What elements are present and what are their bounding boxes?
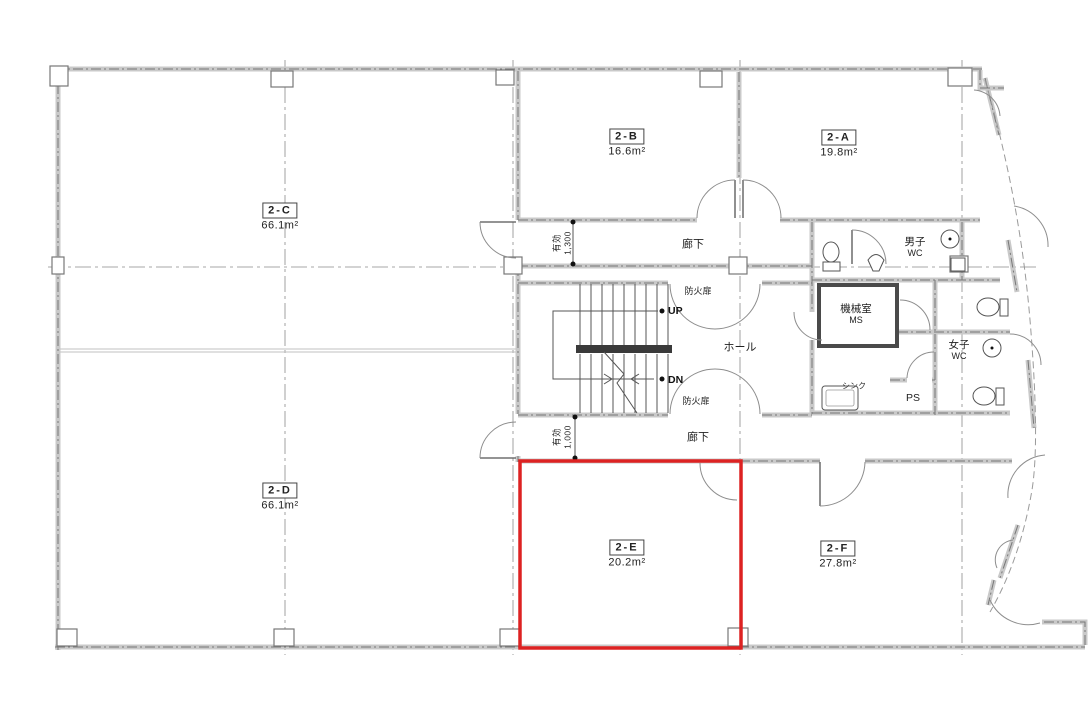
fire-door-lower-label: 防火扉 — [682, 396, 709, 406]
room-tag-2B: 2-B — [609, 129, 645, 145]
corridor-upper-label: 廊下 — [682, 239, 704, 252]
room-tag-2A: 2-A — [821, 130, 857, 146]
grid-lines — [48, 60, 1040, 655]
room-area-2D: 66.1m² — [261, 500, 298, 512]
urinal-icon — [868, 255, 884, 272]
room-area-2E: 20.2m² — [608, 557, 645, 569]
room-area-2F: 27.8m² — [819, 558, 856, 570]
room-label-2E[interactable]: 2-E 20.2m² — [608, 538, 645, 569]
room-label-2C: 2-C 66.1m² — [261, 201, 298, 232]
tenant-partition-line — [57, 349, 516, 352]
hall-label: ホール — [724, 342, 757, 355]
room-label-2D: 2-D 66.1m² — [261, 481, 298, 512]
fire-door-upper-label: 防火扉 — [684, 286, 711, 296]
toilet-icon — [977, 298, 999, 316]
walls-centerline — [55, 66, 1085, 650]
stair-landing — [576, 345, 672, 353]
pipe-space-label: PS — [906, 392, 920, 404]
corridor-lower-label: 廊下 — [687, 432, 709, 445]
stairs-up-label: UP — [668, 305, 683, 317]
room-tag-2F: 2-F — [821, 541, 856, 557]
toilet-icon — [973, 387, 995, 405]
mens-wc-label: 男子 WC — [905, 236, 926, 258]
room-label-2B: 2-B 16.6m² — [608, 127, 645, 158]
walls — [55, 66, 1085, 650]
floor-plan-canvas: 2-C 66.1m² 2-B 16.6m² 2-A 19.8m² 2-D 66.… — [0, 0, 1092, 708]
womens-wc-label: 女子 WC — [949, 339, 970, 361]
toilet-icon — [823, 242, 839, 262]
sink-label: シンク — [842, 381, 866, 390]
room-area-2C: 66.1m² — [261, 220, 298, 232]
room-area-2B: 16.6m² — [608, 146, 645, 158]
room-label-2A: 2-A 19.8m² — [820, 128, 857, 159]
room-tag-2E: 2-E — [609, 540, 644, 556]
stairs-down-label: DN — [668, 374, 683, 386]
machine-room-label: 機械室 MS — [840, 303, 872, 325]
clear-width-lower-dimension: 有効 1,000 — [551, 425, 572, 449]
room-area-2A: 19.8m² — [820, 147, 857, 159]
floor-plan-linework — [0, 0, 1092, 708]
room-tag-2C: 2-C — [262, 203, 298, 219]
staircase — [553, 284, 672, 413]
room-label-2F: 2-F 27.8m² — [819, 539, 856, 570]
room-tag-2D: 2-D — [262, 483, 298, 499]
clear-width-upper-dimension: 有効 1,300 — [551, 231, 572, 255]
